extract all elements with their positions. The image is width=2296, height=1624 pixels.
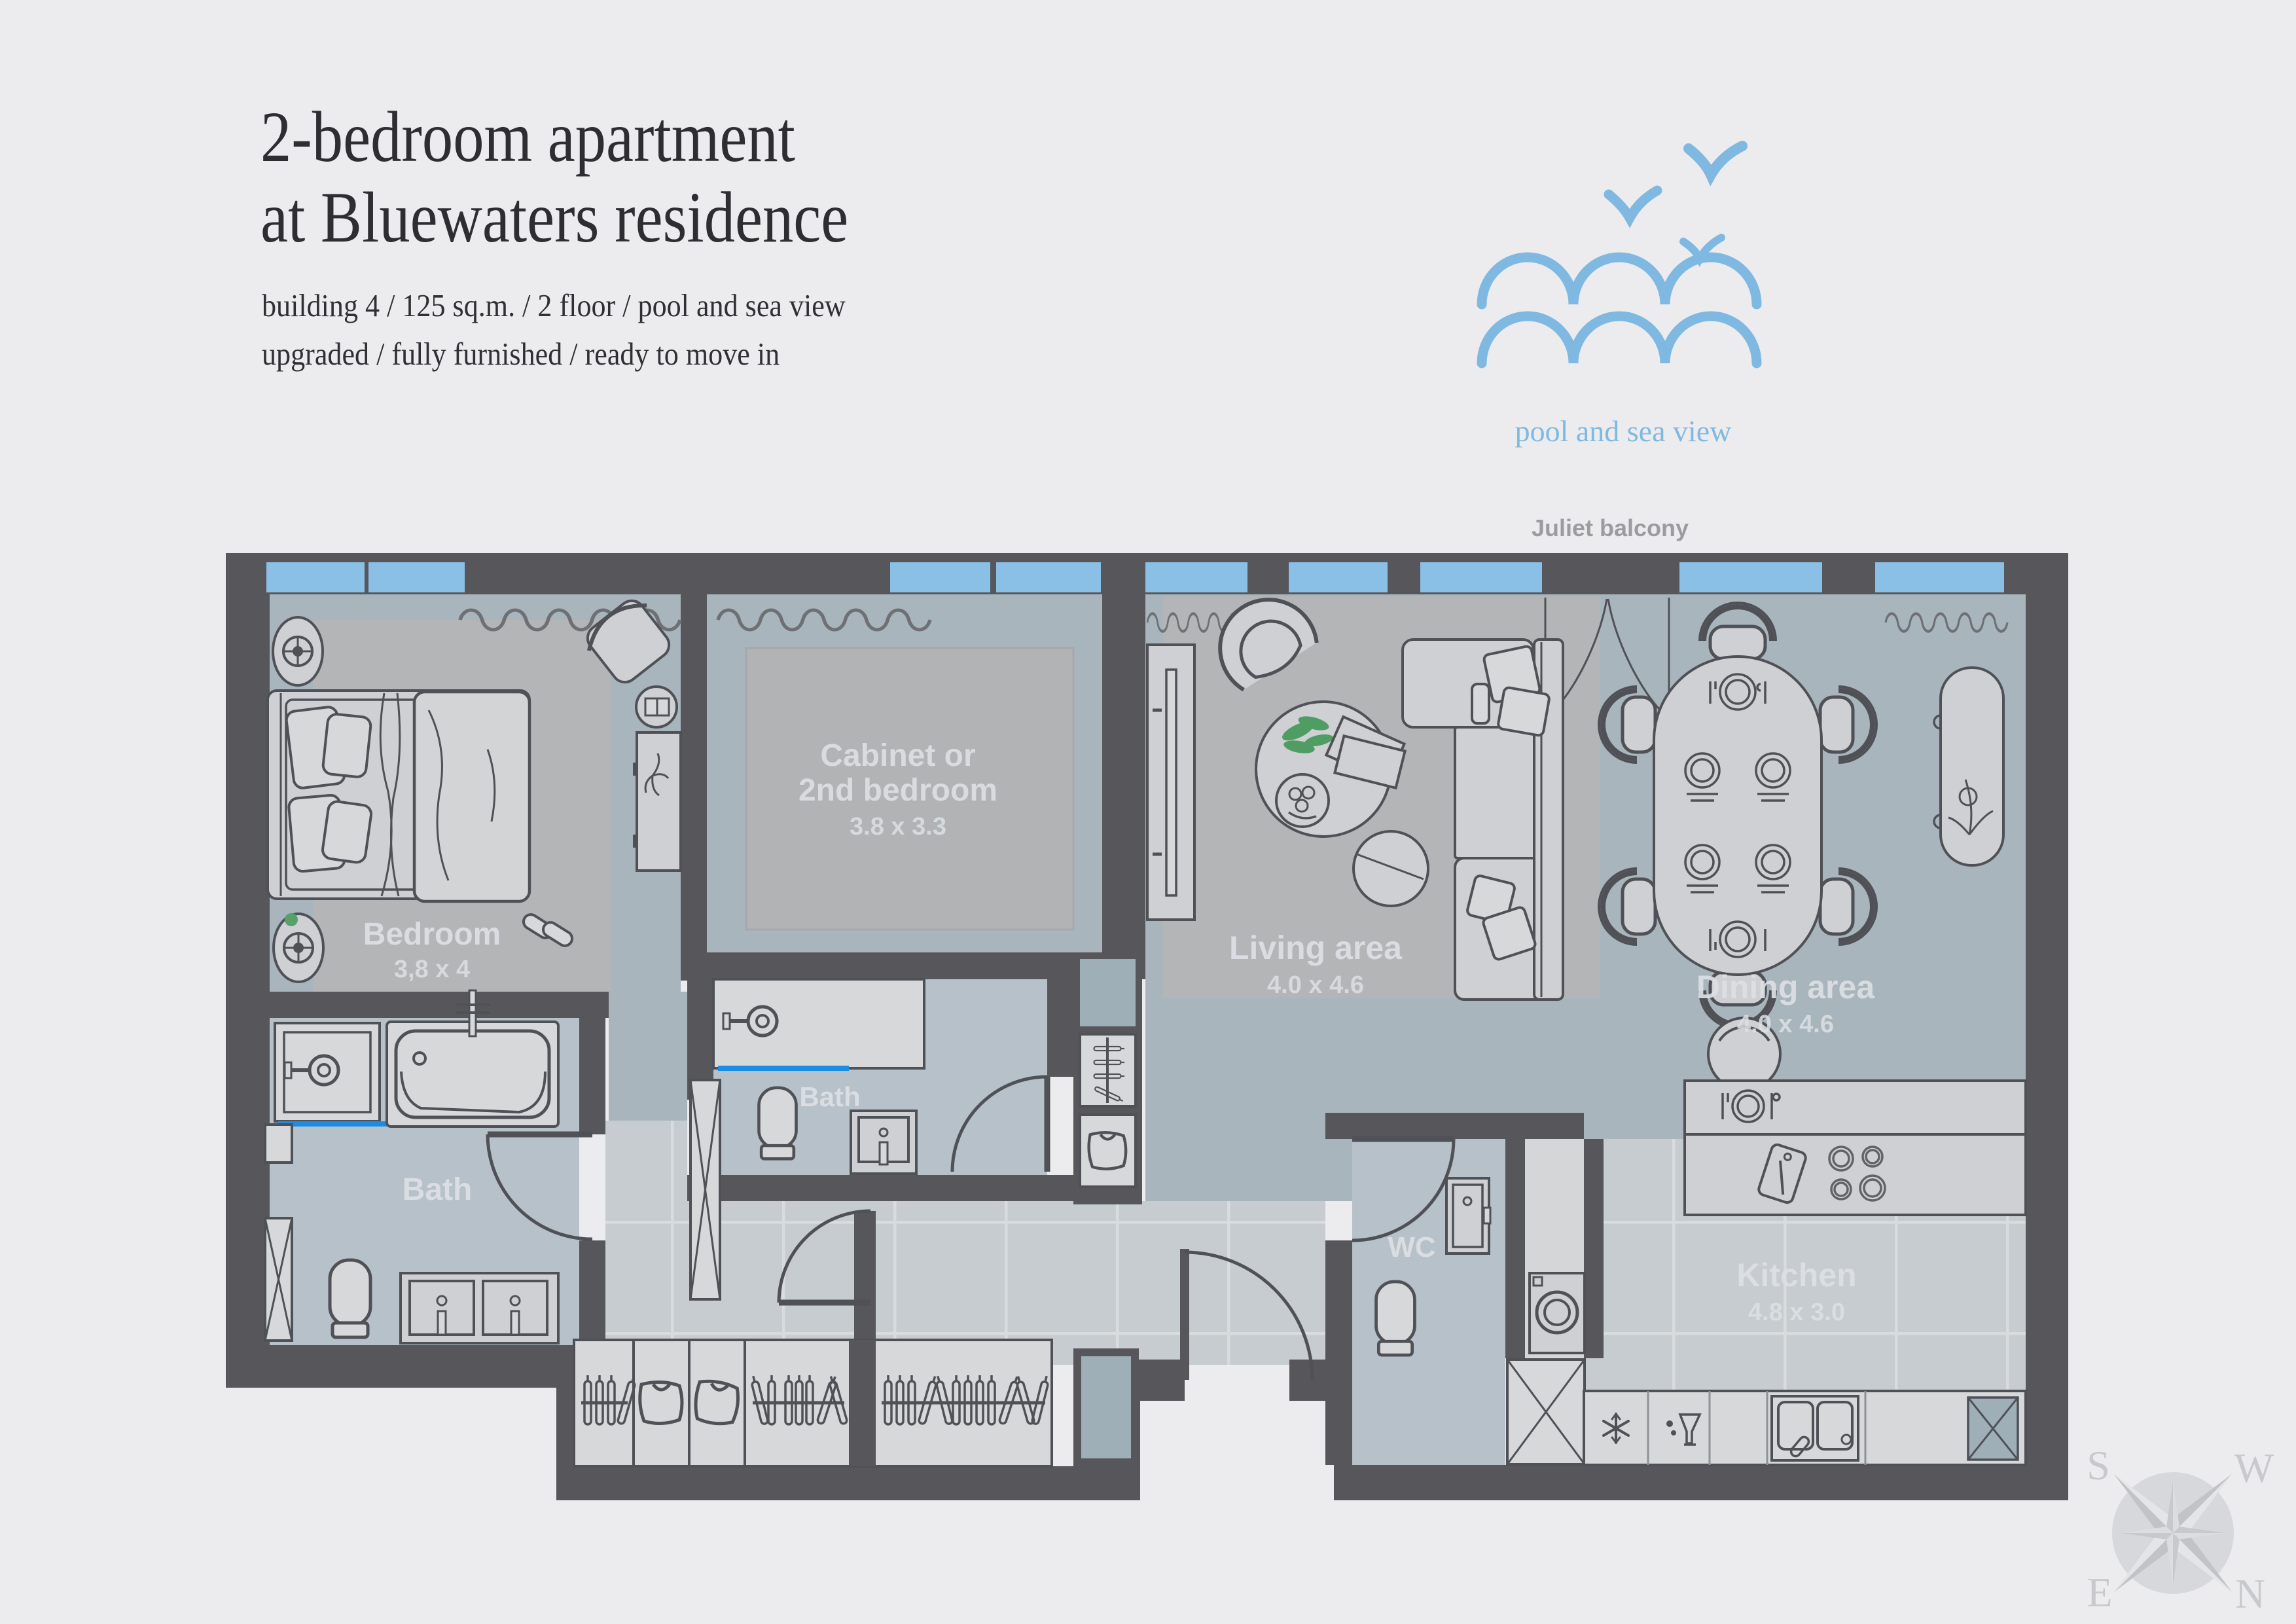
logo-caption: pool and sea view (1486, 414, 1761, 448)
dining-table-icon (1654, 657, 1821, 975)
window (890, 562, 990, 592)
wardrobe-row (574, 1340, 1131, 1466)
bedroom-side-table-icon (636, 687, 677, 727)
toilet-icon (759, 1088, 796, 1159)
juliet-balcony-label: Juliet balcony (1499, 514, 1721, 542)
window (1420, 562, 1542, 592)
page-subtitle: building 4 / 125 sq.m. / 2 floor / pool … (262, 281, 846, 378)
tv-console-icon (1147, 645, 1194, 920)
laundry-basket-icon (1080, 1115, 1136, 1187)
cabinet-dims: 3.8 x 3.3 (850, 813, 946, 840)
kitchen-island-icon (1685, 1081, 2026, 1215)
duct-icon (691, 1080, 720, 1299)
window (266, 562, 365, 592)
window (1679, 562, 1822, 592)
toilet-icon (1376, 1282, 1415, 1355)
bedroom-label: Bedroom (363, 917, 501, 952)
sea-logo (1473, 108, 1774, 396)
cabinet-label-1: Cabinet or (820, 738, 975, 773)
washing-machine-icon (1530, 1273, 1585, 1353)
cabinet-label-2: 2nd bedroom (798, 773, 997, 808)
compass-west: W (2234, 1445, 2274, 1491)
kitchen-dims: 4.8 x 3.0 (1748, 1299, 1845, 1326)
bedroom-dims: 3,8 x 4 (394, 956, 470, 983)
waves-icon (1482, 257, 1757, 363)
compass-north: N (2235, 1570, 2265, 1617)
living-label: Living area (1229, 929, 1403, 966)
subtitle-line-2: upgraded / fully furnished / ready to mo… (262, 330, 846, 378)
double-vanity-icon (401, 1273, 558, 1343)
kitchen-label: Kitchen (1736, 1257, 1856, 1293)
window (1875, 562, 2004, 592)
bedroom-corridor-floor (609, 992, 687, 1121)
shaft (1081, 1356, 1131, 1458)
shaft (1080, 959, 1136, 1026)
wall-niche (265, 1125, 292, 1163)
pantry-closet-icon (1507, 1360, 1585, 1464)
compass-east: E (2087, 1569, 2112, 1615)
floorplan-page: 2-bedroom apartment at Bluewaters reside… (0, 0, 2296, 1624)
folded-clothes-icon (640, 1382, 682, 1423)
dresser-icon (633, 732, 681, 871)
wc-sink-icon (1446, 1178, 1490, 1254)
wc-label: WC (1388, 1231, 1435, 1263)
dining-dims: 4.0 x 4.6 (1737, 1011, 1834, 1038)
sink-icon (851, 1111, 916, 1174)
nightstand-icon (274, 913, 323, 982)
folded-clothes-icon (693, 1379, 740, 1426)
coat-closet-icon (1080, 1034, 1136, 1106)
plant-icon (285, 913, 298, 926)
kitchen-counter-icon (1584, 1391, 2026, 1465)
dining-label: Dining area (1696, 969, 1875, 1005)
title-line-1: 2-bedroom apartment (260, 97, 848, 177)
corner-shaft-icon (1968, 1398, 2018, 1460)
title-line-2: at Bluewaters residence (260, 177, 848, 258)
bed-icon (268, 691, 529, 901)
duct-icon (265, 1218, 292, 1341)
window (1145, 562, 1247, 592)
bath-second-label: Bath (799, 1081, 860, 1112)
window (1289, 562, 1388, 592)
bath-main-label: Bath (403, 1172, 473, 1207)
bird-icon (1609, 146, 1742, 259)
compass-south: S (2087, 1442, 2110, 1489)
floor-plan: Bedroom 3,8 x 4 Cabinet or 2nd bedroom 3… (226, 553, 2068, 1509)
shower-icon (713, 979, 924, 1068)
console-cabinet-icon (1934, 668, 2003, 865)
corridor-tiles (605, 1121, 687, 1343)
compass-rose: S W E N (2047, 1402, 2296, 1618)
nightstand-icon (273, 617, 323, 685)
window (996, 562, 1101, 592)
page-title: 2-bedroom apartment at Bluewaters reside… (260, 97, 848, 258)
window (368, 562, 465, 592)
subtitle-line-1: building 4 / 125 sq.m. / 2 floor / pool … (262, 281, 846, 330)
toilet-icon (330, 1260, 370, 1337)
side-table-icon (1354, 831, 1428, 906)
living-dims: 4.0 x 4.6 (1267, 971, 1364, 999)
